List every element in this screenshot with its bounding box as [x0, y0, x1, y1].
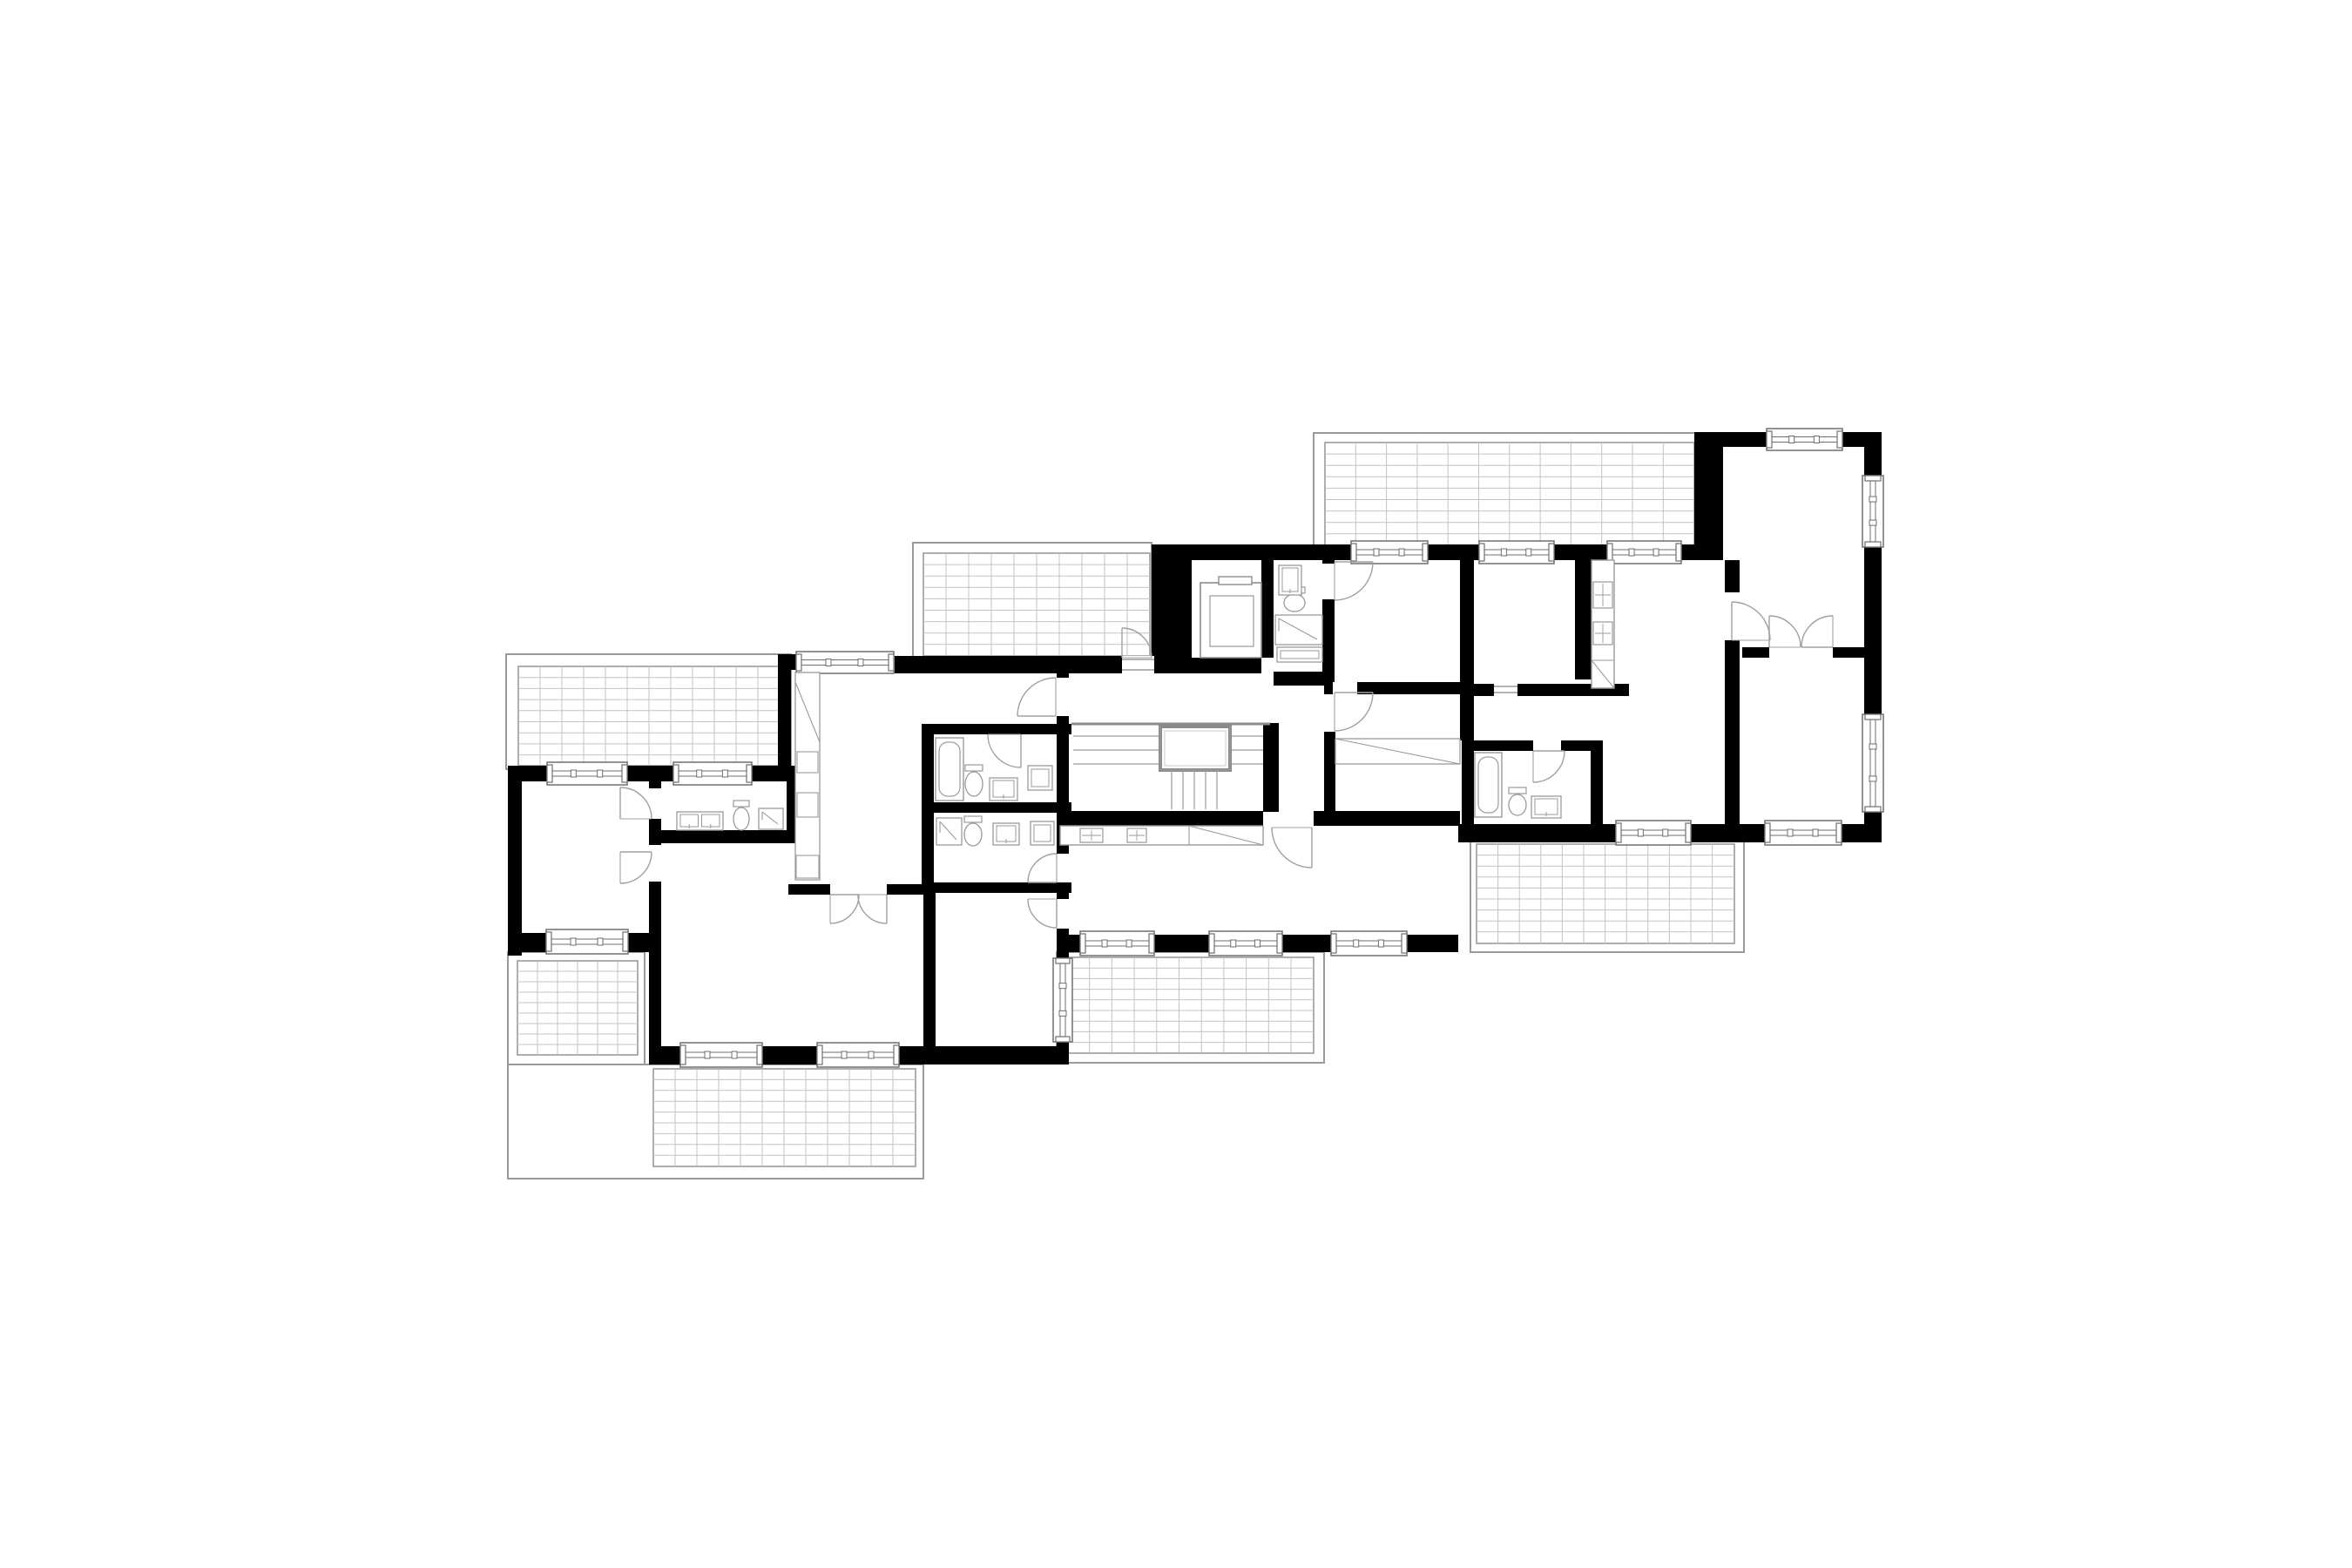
elevator-group — [1200, 577, 1261, 658]
floor-plan-drawing — [0, 0, 2352, 1568]
stairs-group — [1071, 724, 1270, 809]
floor-plan-page — [0, 0, 2352, 1568]
